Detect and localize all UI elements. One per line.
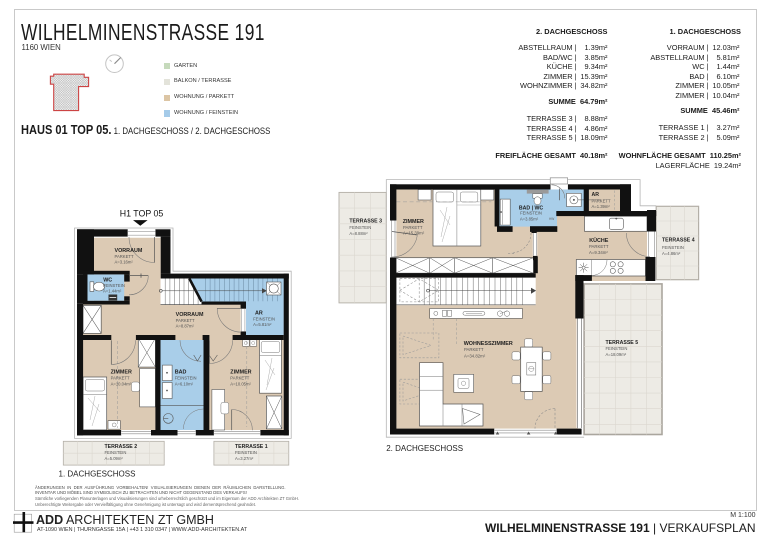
svg-text:A=1.44m²: A=1.44m²: [103, 289, 122, 294]
svg-text:1. DACHGESCHOSS: 1. DACHGESCHOSS: [59, 470, 136, 479]
svg-text:WOHNESSZIMMER: WOHNESSZIMMER: [464, 341, 513, 347]
svg-text:TERRASSE 1: TERRASSE 1: [235, 444, 268, 450]
svg-text:PARKETT: PARKETT: [403, 225, 423, 230]
svg-text:PARKETT: PARKETT: [176, 318, 195, 323]
svg-text:PARKETT: PARKETT: [464, 347, 484, 352]
svg-text:FEINSTEIN: FEINSTEIN: [175, 376, 197, 381]
svg-text:A=10.04m²: A=10.04m²: [111, 382, 132, 387]
svg-text:A=15.39m²: A=15.39m²: [403, 230, 425, 235]
svg-text:PARKETT: PARKETT: [115, 254, 134, 259]
svg-text:A=6.10m²: A=6.10m²: [175, 382, 194, 387]
svg-text:PARKETT: PARKETT: [230, 376, 249, 381]
svg-text:FEINSTEIN: FEINSTEIN: [520, 211, 542, 216]
svg-text:A=8.88m²: A=8.88m²: [349, 231, 368, 236]
svg-text:PARKETT: PARKETT: [592, 198, 611, 203]
svg-text:A=4.86m²: A=4.86m²: [662, 251, 681, 256]
svg-text:A=18.09m²: A=18.09m²: [606, 352, 627, 357]
svg-text:FEINSTEIN: FEINSTEIN: [349, 225, 371, 230]
svg-text:TERRASSE 4: TERRASSE 4: [662, 238, 695, 244]
svg-text:A=34.82m²: A=34.82m²: [464, 353, 486, 358]
svg-text:FEINSTEIN: FEINSTEIN: [235, 450, 257, 455]
svg-text:PARKETT: PARKETT: [111, 376, 130, 381]
svg-text:A=3.16m²: A=3.16m²: [115, 260, 134, 265]
svg-text:H1 TOP 05: H1 TOP 05: [120, 209, 164, 219]
svg-text:A=3.27m²: A=3.27m²: [235, 456, 254, 461]
svg-text:TERRASSE 2: TERRASSE 2: [105, 444, 138, 450]
svg-text:A=9.34m²: A=9.34m²: [589, 250, 608, 255]
svg-text:A=3.85m²: A=3.85m²: [520, 216, 539, 221]
svg-text:A=5.09m²: A=5.09m²: [105, 456, 124, 461]
svg-text:A=1.39m²: A=1.39m²: [592, 204, 611, 209]
svg-text:A=10.05m²: A=10.05m²: [230, 382, 251, 387]
svg-text:FEINSTEIN: FEINSTEIN: [606, 346, 628, 351]
svg-text:PARKETT: PARKETT: [589, 244, 609, 249]
svg-text:FEINSTEIN: FEINSTEIN: [662, 245, 684, 250]
svg-text:AR: AR: [592, 192, 600, 198]
svg-text:HW: HW: [549, 217, 554, 221]
svg-text:FEINSTEIN: FEINSTEIN: [105, 450, 127, 455]
svg-text:A=5.81m²: A=5.81m²: [253, 322, 272, 327]
svg-text:FEINSTEIN: FEINSTEIN: [253, 317, 275, 322]
svg-text:KÜCHE: KÜCHE: [589, 237, 609, 244]
svg-text:2. DACHGESCHOSS: 2. DACHGESCHOSS: [386, 444, 463, 453]
svg-text:A=8.87m²: A=8.87m²: [176, 323, 195, 328]
svg-text:TERRASSE 3: TERRASSE 3: [349, 219, 382, 225]
svg-text:FEINSTEIN: FEINSTEIN: [103, 283, 125, 288]
